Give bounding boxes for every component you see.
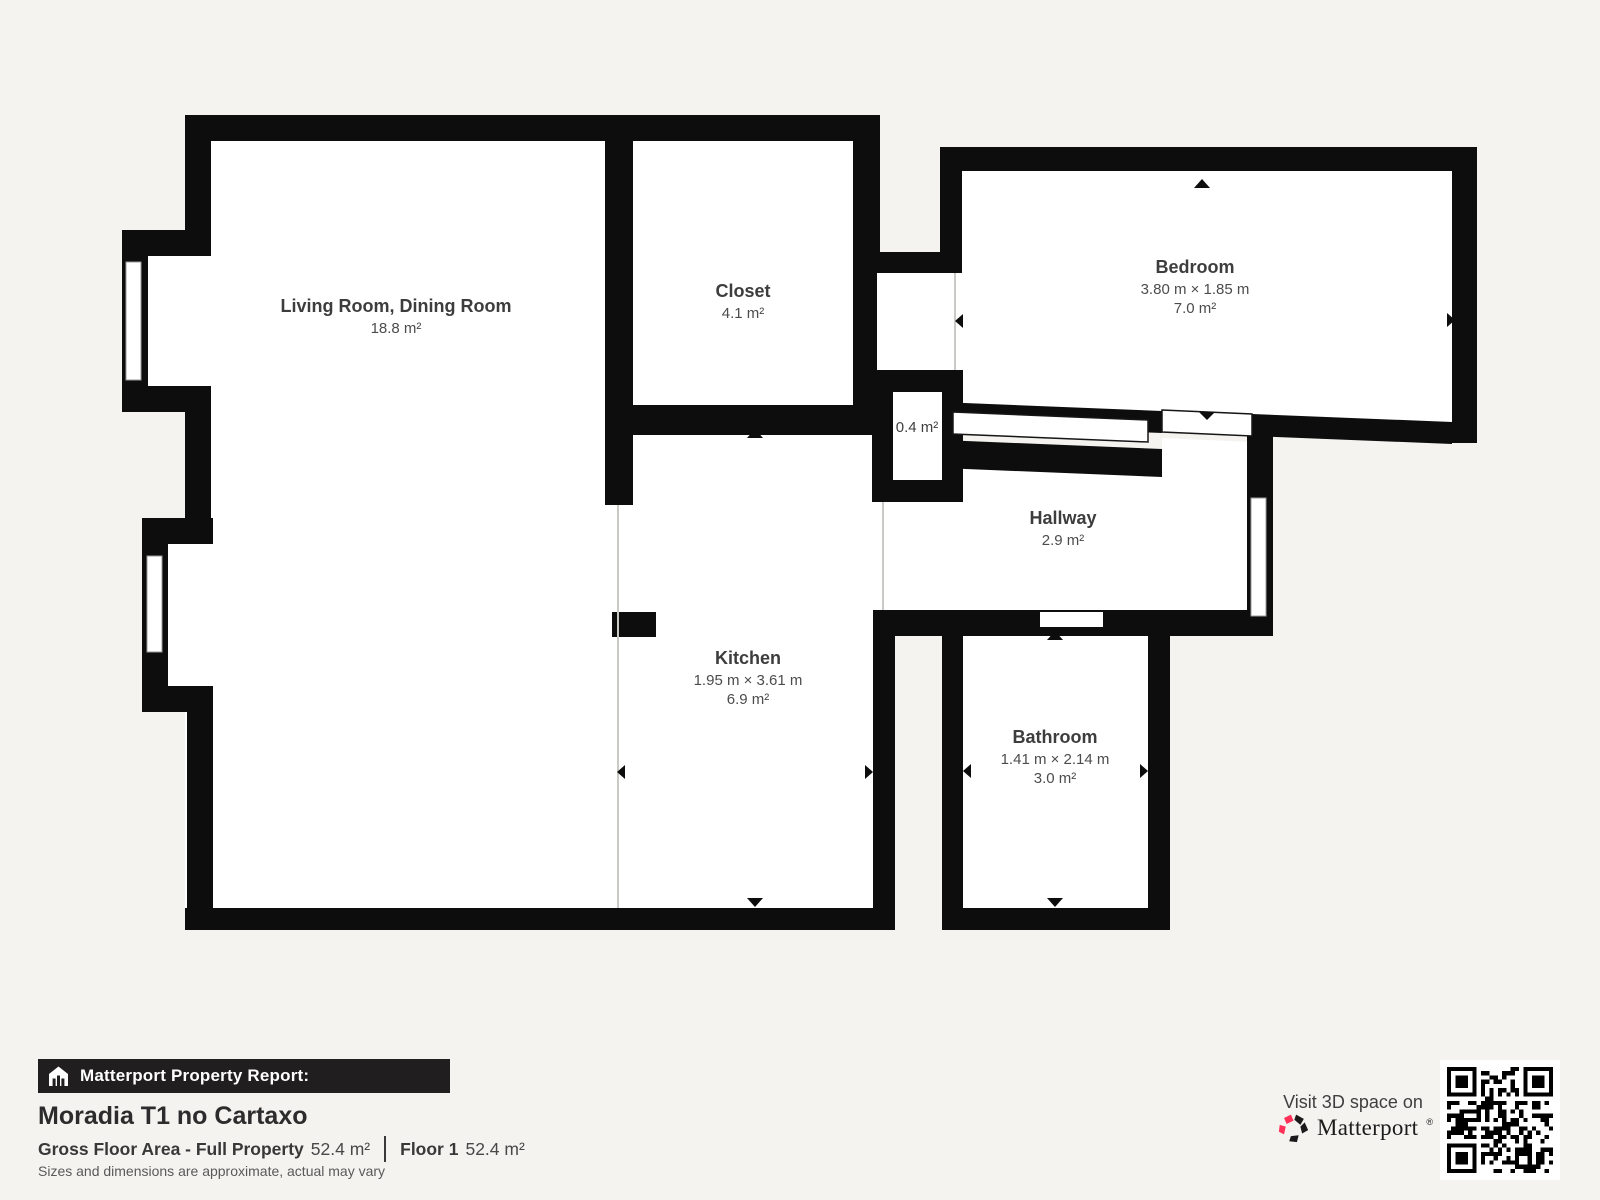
room-label-kitchen: Kitchen <box>715 648 781 668</box>
room-label-closet: Closet <box>715 281 770 301</box>
door-entry <box>1251 498 1266 616</box>
room-label-hallway: Hallway <box>1029 508 1096 528</box>
report-header-label: Matterport Property Report: <box>80 1066 309 1086</box>
room-label-bedroom: Bedroom <box>1155 257 1234 277</box>
floor-plan: Living Room, Dining Room 18.8 m² Closet … <box>0 0 1600 1040</box>
disclaimer-note: Sizes and dimensions are approximate, ac… <box>38 1163 385 1179</box>
room-floor-areas <box>122 115 1477 908</box>
floor1-value: 52.4 m² <box>465 1139 524 1160</box>
room-dims-bathroom: 1.41 m × 2.14 m <box>1001 751 1110 768</box>
room-area-bedroom: 7.0 m² <box>1174 300 1217 317</box>
property-title: Moradia T1 no Cartaxo <box>38 1102 308 1131</box>
property-report-icon <box>48 1066 69 1087</box>
matterport-brand: Matterport ® <box>1278 1112 1433 1143</box>
gross-floor-area-label: Gross Floor Area - Full Property <box>38 1139 304 1160</box>
divider <box>384 1136 386 1162</box>
window-living-1 <box>126 262 141 380</box>
visit-3d-text: Visit 3D space on <box>1253 1092 1453 1113</box>
floor1-label: Floor 1 <box>400 1139 458 1160</box>
matterport-logo-icon <box>1278 1112 1309 1143</box>
floor-area-summary: Gross Floor Area - Full Property 52.4 m²… <box>38 1136 525 1162</box>
room-area-kitchen: 6.9 m² <box>727 691 770 708</box>
room-dims-kitchen: 1.95 m × 3.61 m <box>694 672 803 689</box>
room-area-living: 18.8 m² <box>371 320 422 337</box>
room-area-small-closet: 0.4 m² <box>896 419 939 436</box>
room-label-bathroom: Bathroom <box>1013 727 1098 747</box>
report-header-bar: Matterport Property Report: <box>38 1059 450 1093</box>
room-dims-bedroom: 3.80 m × 1.85 m <box>1141 281 1250 298</box>
matterport-wordmark: Matterport <box>1317 1115 1418 1141</box>
room-area-bathroom: 3.0 m² <box>1034 770 1077 787</box>
window-living-2 <box>147 556 162 652</box>
registered-mark: ® <box>1426 1117 1433 1127</box>
room-label-living: Living Room, Dining Room <box>281 296 512 316</box>
qr-code <box>1440 1060 1560 1180</box>
gross-floor-area-value: 52.4 m² <box>311 1139 370 1160</box>
door-bathroom <box>1040 612 1103 627</box>
room-area-hallway: 2.9 m² <box>1042 532 1085 549</box>
room-area-closet: 4.1 m² <box>722 305 765 322</box>
